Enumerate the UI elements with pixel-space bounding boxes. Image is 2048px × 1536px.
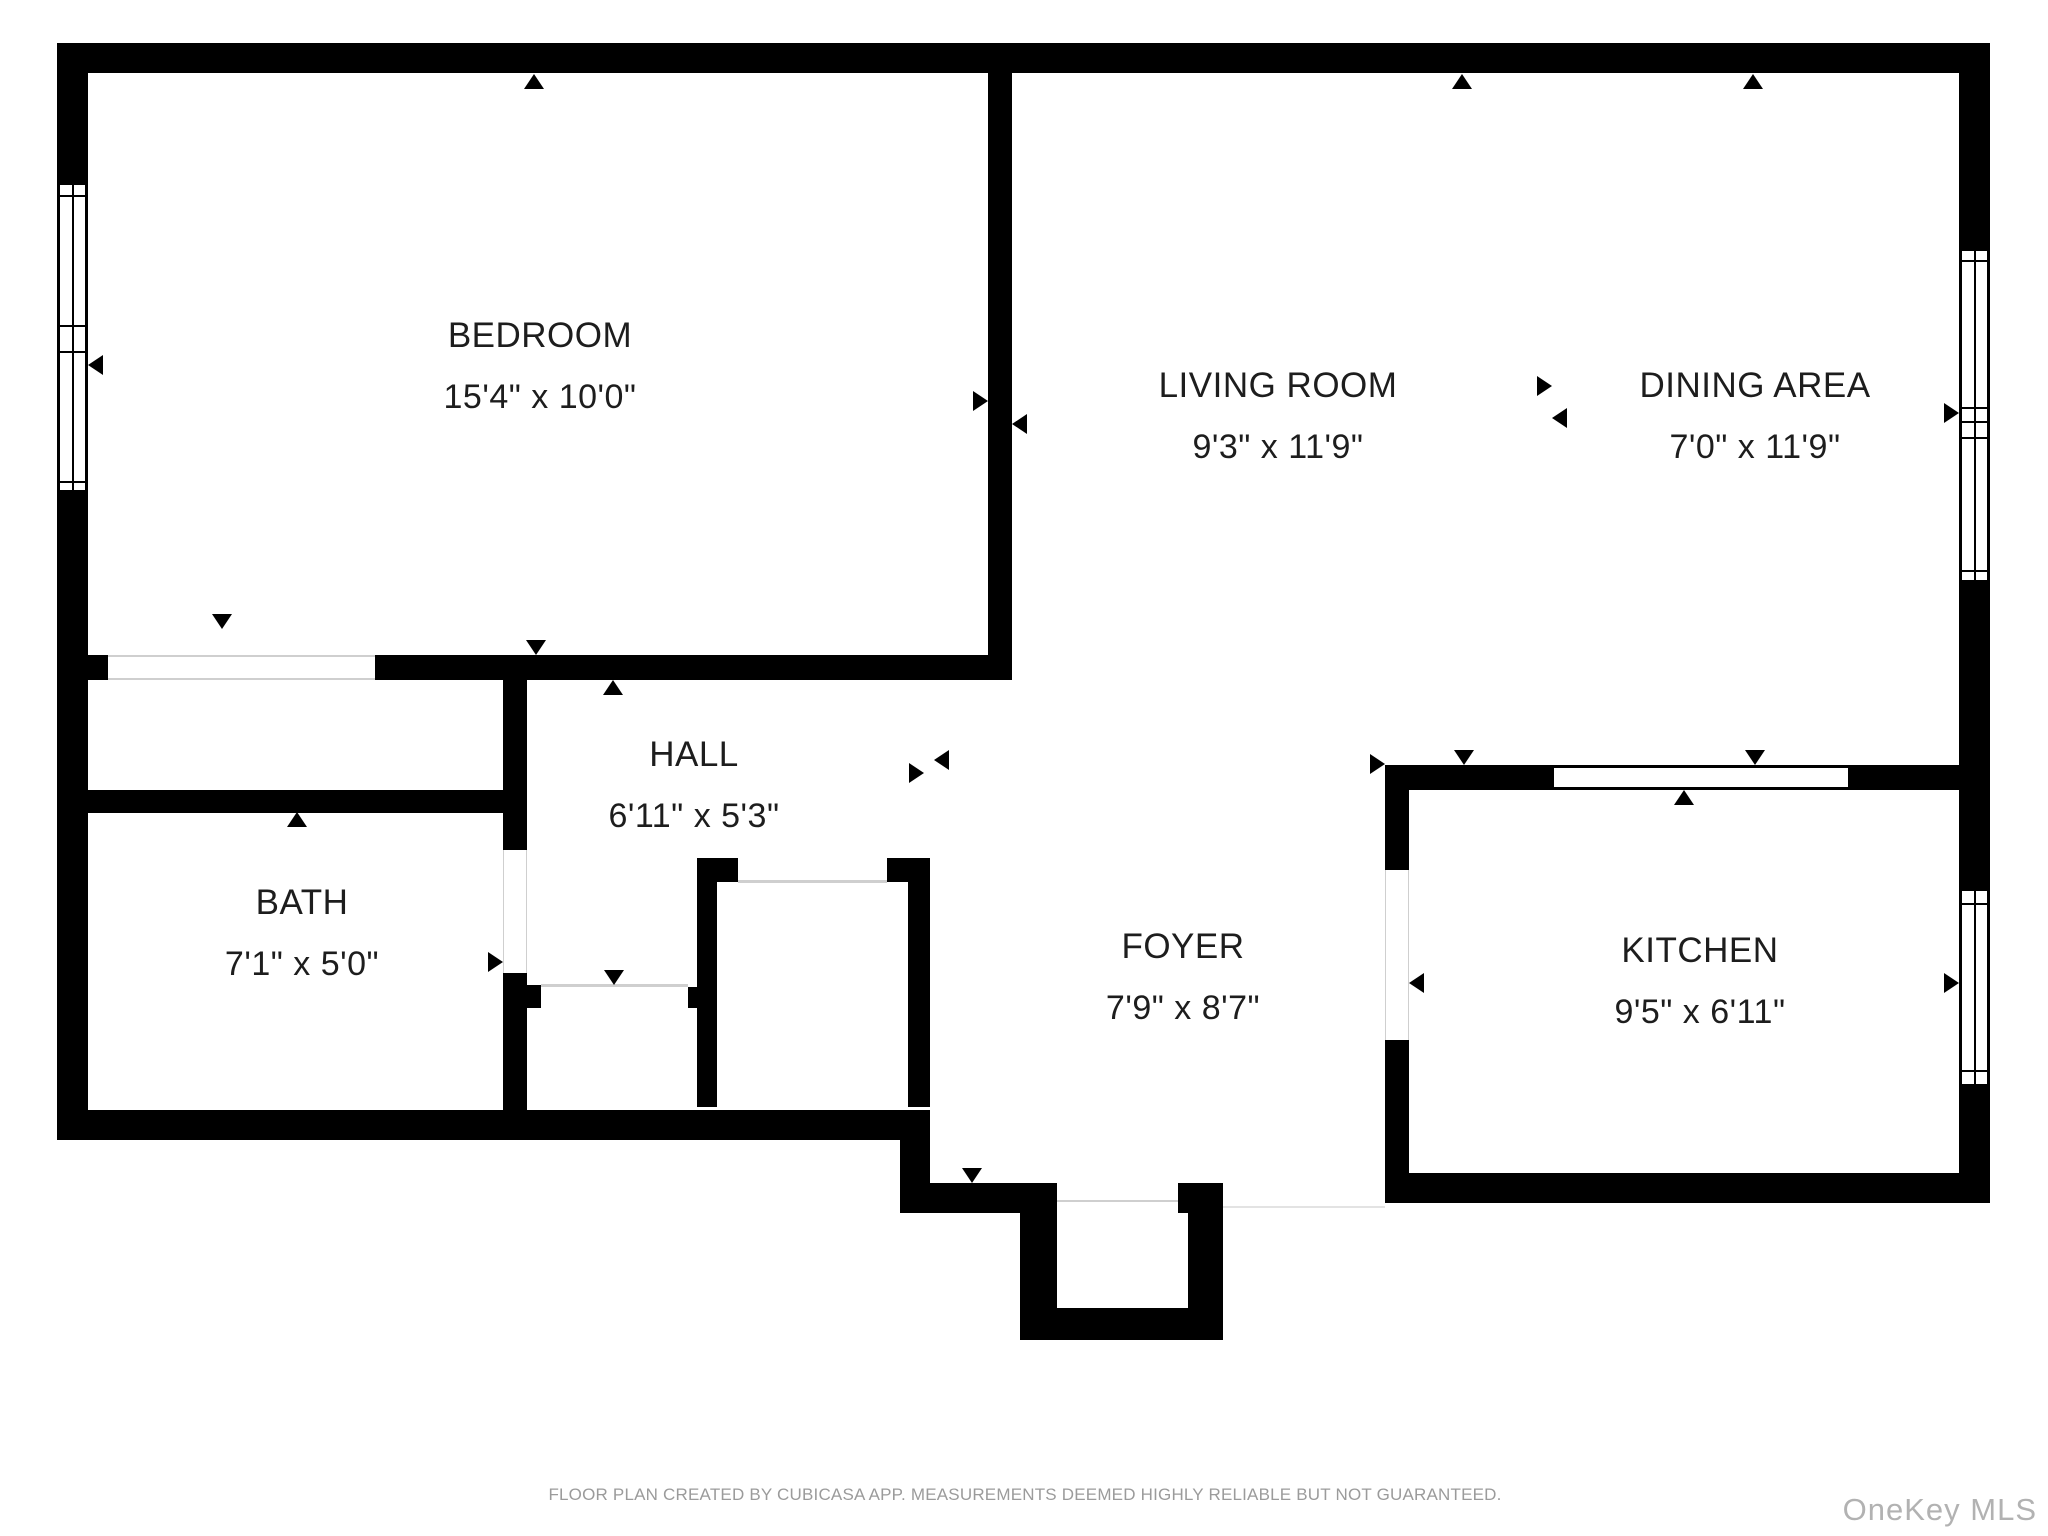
kitchen-wall-left-lower — [1385, 1040, 1409, 1203]
kitchen-pass-through-window — [1551, 765, 1851, 790]
room-label-kitchen: KITCHEN 9'5" x 6'11" — [1614, 928, 1785, 1034]
entry-door-opening — [1057, 1200, 1178, 1202]
wall-marker-icon — [1944, 973, 1959, 993]
room-name: BEDROOM — [444, 313, 637, 359]
closet-wall-stub-left — [527, 985, 541, 1008]
wall-marker-icon — [1409, 973, 1424, 993]
closet-wall-middle-top-stub — [697, 858, 738, 882]
wall-marker-icon — [287, 812, 307, 827]
room-dimensions: 6'11" x 5'3" — [608, 794, 779, 838]
wall-marker-icon — [1552, 408, 1567, 428]
wall-marker-icon — [1537, 376, 1552, 396]
watermark-onekey-mls: OneKey MLS — [1843, 1492, 2037, 1528]
entry-alcove-wall-right-top-stub — [1178, 1183, 1223, 1213]
window-frame-line — [1962, 437, 1987, 439]
window-frame-line — [1962, 570, 1987, 572]
wall-marker-icon — [603, 680, 623, 695]
wall-marker-icon — [1012, 414, 1027, 434]
bedroom-wall-bottom — [375, 655, 1012, 680]
wall-marker-icon — [973, 391, 988, 411]
closet-door-opening-2 — [738, 880, 887, 883]
window-frame-line — [1962, 421, 1987, 423]
bedroom-door-opening — [108, 655, 375, 680]
wall-marker-icon — [1370, 754, 1385, 774]
room-label-bedroom: BEDROOM 15'4" x 10'0" — [444, 313, 637, 419]
entry-alcove-wall-right — [1188, 1213, 1223, 1340]
window-frame-line — [60, 325, 85, 327]
window-frame-line — [1962, 1070, 1987, 1072]
closet-wall-middle — [697, 858, 717, 1107]
room-name: LIVING ROOM — [1159, 363, 1398, 409]
closet-wall-right-top-stub — [887, 858, 930, 882]
room-dimensions: 7'0" x 11'9" — [1639, 425, 1870, 469]
hall-wall-left-upper — [503, 680, 527, 850]
bedroom-left-window — [57, 182, 88, 493]
room-dimensions: 7'9" x 8'7" — [1106, 986, 1260, 1030]
room-label-hall: HALL 6'11" x 5'3" — [608, 732, 779, 838]
window-center-line — [1974, 251, 1976, 580]
wall-marker-icon — [909, 763, 924, 783]
wall-marker-icon — [604, 970, 624, 985]
window-frame-line — [60, 351, 85, 353]
kitchen-right-window — [1959, 888, 1990, 1087]
bedroom-wall-right — [988, 73, 1012, 680]
room-dimensions: 9'3" x 11'9" — [1159, 425, 1398, 469]
wall-marker-icon — [1452, 74, 1472, 89]
wall-marker-icon — [212, 614, 232, 629]
room-label-foyer: FOYER 7'9" x 8'7" — [1106, 924, 1260, 1030]
bedroom-wall-bottom-stub — [88, 655, 108, 680]
room-dimensions: 7'1" x 5'0" — [225, 942, 379, 986]
wall-marker-icon — [524, 74, 544, 89]
room-label-bath: BATH 7'1" x 5'0" — [225, 880, 379, 986]
room-name: BATH — [225, 880, 379, 926]
hall-wall-left-lower — [503, 973, 527, 1110]
wall-marker-icon — [962, 1168, 982, 1183]
footer-disclaimer: FLOOR PLAN CREATED BY CUBICASA APP. MEAS… — [548, 1485, 1501, 1505]
foyer-wall-bottom-left — [900, 1183, 1057, 1213]
wall-marker-icon — [934, 750, 949, 770]
window-frame-line — [60, 195, 85, 197]
window-frame-line — [1962, 260, 1987, 262]
room-name: DINING AREA — [1639, 363, 1870, 409]
kitchen-door-opening — [1385, 870, 1409, 1040]
foyer-boundary-line — [1223, 1206, 1385, 1208]
room-name: KITCHEN — [1614, 928, 1785, 974]
wall-marker-icon — [1674, 790, 1694, 805]
wall-marker-icon — [88, 355, 103, 375]
wall-marker-icon — [488, 952, 503, 972]
wall-marker-icon — [1745, 750, 1765, 765]
outer-wall-bottom-left — [57, 1110, 930, 1140]
room-dimensions: 9'5" x 6'11" — [1614, 990, 1785, 1034]
wall-marker-icon — [1454, 750, 1474, 765]
wall-marker-icon — [1944, 403, 1959, 423]
outer-wall-top — [57, 43, 1990, 73]
closet-wall-right — [908, 858, 930, 1107]
wall-marker-icon — [526, 640, 546, 655]
kitchen-wall-bottom — [1385, 1173, 1990, 1203]
room-name: FOYER — [1106, 924, 1260, 970]
room-name: HALL — [608, 732, 779, 778]
window-center-line — [72, 185, 74, 490]
window-frame-line — [1962, 903, 1987, 905]
bath-wall-top — [88, 790, 503, 813]
wall-marker-icon — [1743, 74, 1763, 89]
dining-right-window — [1959, 248, 1990, 583]
bath-door-opening — [503, 850, 527, 973]
window-center-line — [1974, 891, 1976, 1084]
room-dimensions: 15'4" x 10'0" — [444, 375, 637, 419]
room-label-dining-area: DINING AREA 7'0" x 11'9" — [1639, 363, 1870, 469]
room-label-living-room: LIVING ROOM 9'3" x 11'9" — [1159, 363, 1398, 469]
window-frame-line — [1962, 407, 1987, 409]
floor-plan-canvas: BEDROOM 15'4" x 10'0" LIVING ROOM 9'3" x… — [0, 0, 2048, 1536]
window-frame-line — [60, 481, 85, 483]
